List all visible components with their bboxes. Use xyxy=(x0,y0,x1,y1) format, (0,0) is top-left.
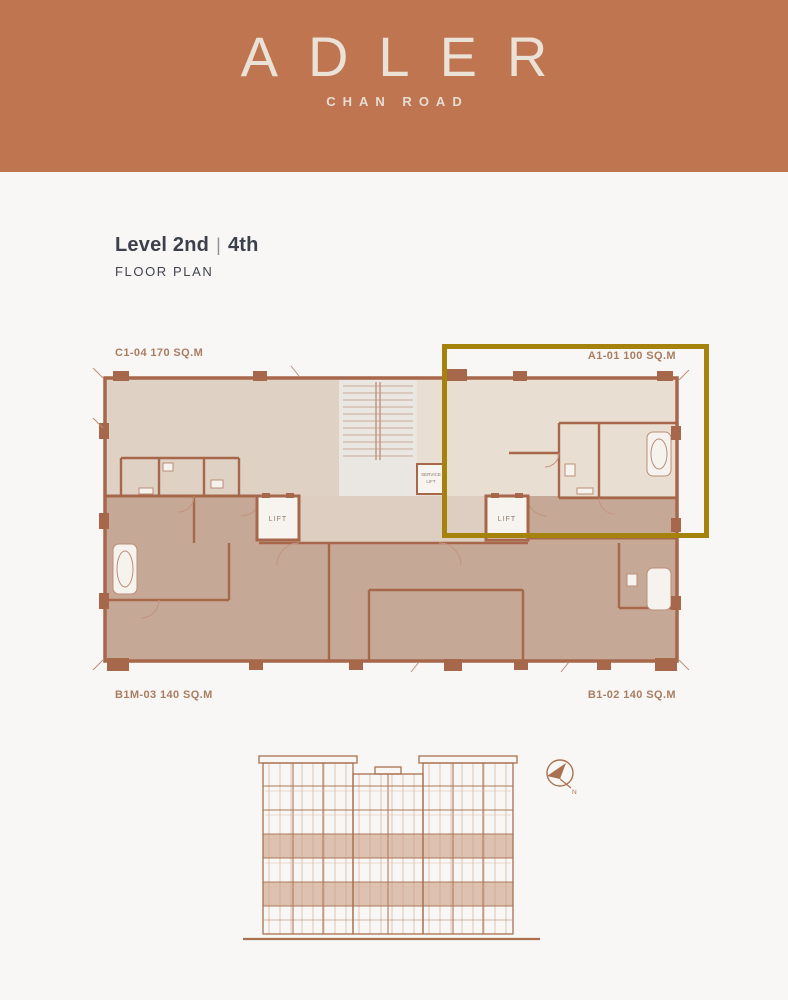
service-lift-label-line1: SERVICE xyxy=(421,472,441,477)
brand-header: ADLER CHAN ROAD xyxy=(0,0,788,172)
page-subtitle: FLOOR PLAN xyxy=(115,264,259,279)
service-lift: SERVICE LIFT xyxy=(417,464,445,494)
compass-north-label: N xyxy=(572,789,577,796)
page-title: Level 2nd|4th xyxy=(115,234,259,257)
unit-label-b1m-03: B1M-03 140 SQ.M xyxy=(115,689,213,701)
compass-north-icon: N xyxy=(547,760,577,796)
level-secondary: 4th xyxy=(228,234,259,256)
building-elevation: N xyxy=(235,748,585,953)
page: ADLER CHAN ROAD Level 2nd|4th FLOOR PLAN… xyxy=(0,0,788,1000)
title-block: Level 2nd|4th FLOOR PLAN xyxy=(115,234,259,279)
brand-logo: ADLER xyxy=(211,26,578,88)
title-separator: | xyxy=(216,235,221,255)
unit-a1-01-highlight xyxy=(442,344,709,538)
level-primary: Level 2nd xyxy=(115,234,209,256)
unit-label-b1-02: B1-02 140 SQ.M xyxy=(588,689,676,701)
brand-tagline: CHAN ROAD xyxy=(319,94,468,109)
lift-left-label: LIFT xyxy=(269,516,287,523)
service-lift-label-line2: LIFT xyxy=(426,479,436,484)
lift-left: LIFT xyxy=(257,493,299,540)
